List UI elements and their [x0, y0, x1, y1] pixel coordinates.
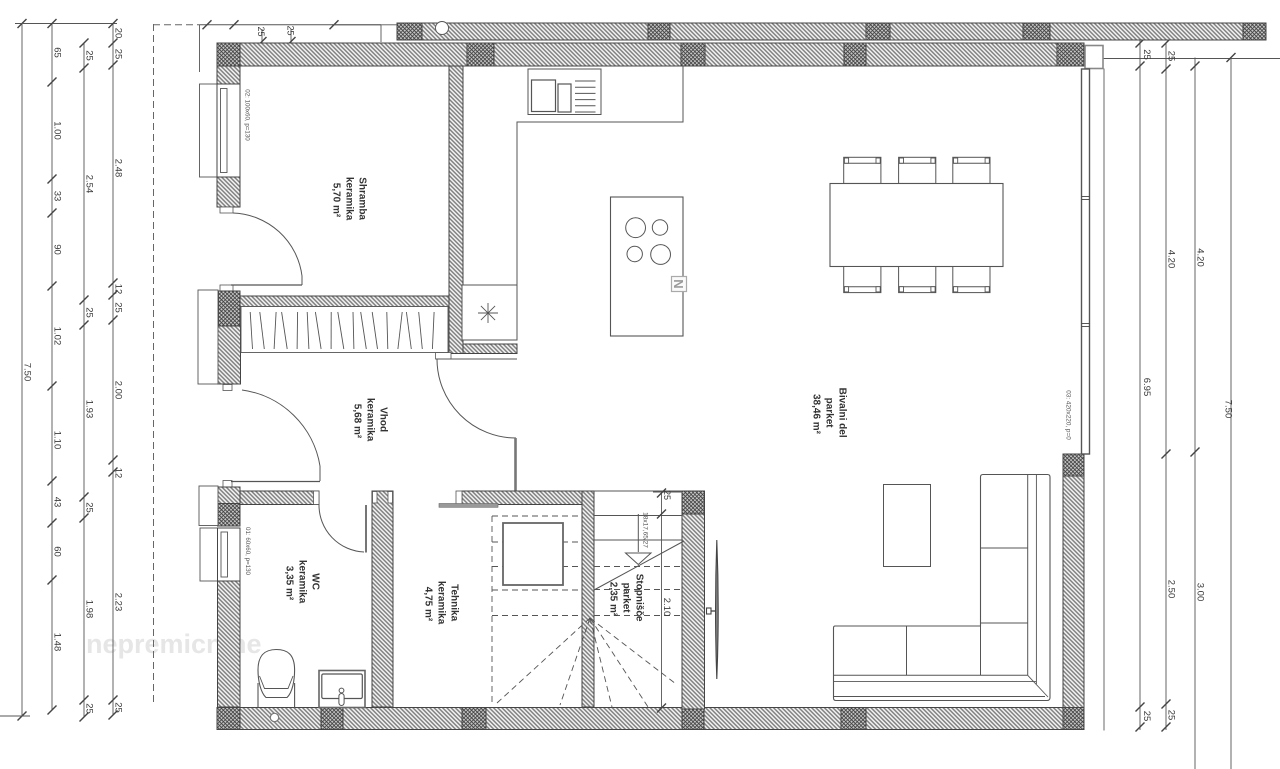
svg-text:4.20: 4.20: [1195, 248, 1206, 267]
svg-text:18x17,65/27: 18x17,65/27: [642, 512, 649, 548]
svg-text:7.50: 7.50: [22, 363, 33, 382]
svg-text:1.98: 1.98: [84, 600, 95, 619]
svg-text:1.00: 1.00: [52, 121, 63, 140]
svg-text:4.20: 4.20: [1166, 250, 1177, 269]
svg-text:02: 100x60, p=130: 02: 100x60, p=130: [244, 89, 251, 141]
svg-text:25: 25: [84, 703, 95, 714]
svg-text:2.00: 2.00: [113, 381, 124, 400]
svg-text:2.50: 2.50: [1166, 580, 1177, 599]
svg-text:N: N: [671, 279, 686, 288]
svg-text:25: 25: [113, 702, 124, 713]
svg-text:2.48: 2.48: [113, 159, 124, 178]
svg-text:33: 33: [52, 191, 63, 202]
svg-text:25: 25: [113, 302, 124, 313]
svg-text:1.48: 1.48: [52, 633, 63, 652]
svg-text:3.00: 3.00: [1195, 583, 1206, 602]
svg-text:2.23: 2.23: [113, 593, 124, 612]
svg-text:25: 25: [1141, 711, 1152, 722]
svg-text:1.02: 1.02: [52, 327, 63, 346]
svg-text:25: 25: [84, 307, 95, 318]
svg-text:20: 20: [113, 28, 124, 39]
svg-text:1.10: 1.10: [52, 431, 63, 450]
svg-text:90: 90: [52, 244, 63, 255]
svg-text:25: 25: [84, 502, 95, 513]
svg-text:1.93: 1.93: [84, 400, 95, 419]
svg-text:25: 25: [113, 49, 124, 60]
svg-text:01: 60x60, p=130: 01: 60x60, p=130: [244, 527, 251, 576]
svg-text:12: 12: [113, 284, 124, 295]
svg-text:25: 25: [662, 490, 672, 500]
svg-text:65: 65: [52, 47, 63, 58]
svg-text:25: 25: [256, 26, 266, 36]
svg-text:Tehnika keramika 4,75 m²: Tehnika keramika 4,75 m²: [423, 581, 460, 627]
svg-text:60: 60: [52, 546, 63, 557]
svg-text:25: 25: [1141, 49, 1152, 60]
svg-text:7.50: 7.50: [1223, 400, 1234, 419]
svg-text:12: 12: [113, 468, 124, 479]
svg-text:43: 43: [52, 497, 63, 508]
svg-text:2.10: 2.10: [661, 598, 672, 617]
svg-text:25: 25: [1166, 710, 1177, 721]
svg-text:25: 25: [84, 50, 95, 61]
svg-text:6.95: 6.95: [1141, 378, 1152, 397]
svg-text:03: 420x220, p=0: 03: 420x220, p=0: [1065, 390, 1072, 440]
svg-text:25: 25: [286, 25, 296, 35]
svg-text:25: 25: [1166, 51, 1177, 62]
svg-text:Shramba keramika 5,70 m²: Shramba keramika 5,70 m²: [331, 177, 368, 223]
svg-text:2.54: 2.54: [84, 175, 95, 194]
